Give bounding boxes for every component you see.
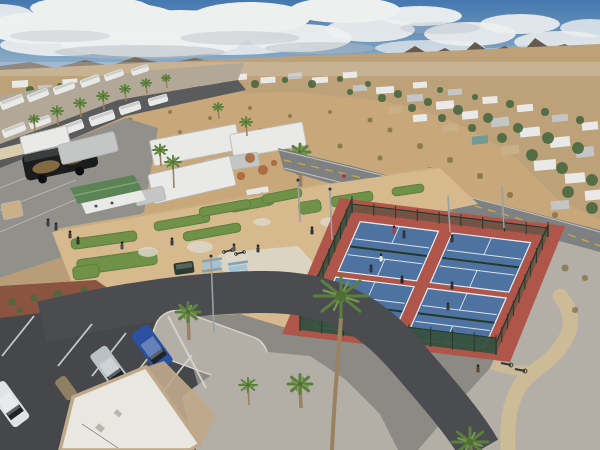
- parked-rv: [147, 93, 168, 106]
- putting-green: [348, 207, 377, 219]
- palm-trunk: [341, 296, 342, 302]
- palm-frond: [185, 312, 188, 318]
- palm-frond: [146, 80, 150, 83]
- desert-shrub: [507, 192, 513, 198]
- palm-frond: [242, 122, 246, 125]
- person-body: [451, 237, 454, 243]
- desert-shrub: [417, 143, 423, 149]
- cloud: [440, 48, 560, 62]
- pavement-lines: [0, 164, 84, 232]
- minigolf-ground: [52, 168, 478, 332]
- pickleball-court: [314, 277, 414, 336]
- palm-frond: [292, 381, 300, 384]
- parked-rv: [103, 68, 124, 81]
- highway: [278, 148, 600, 264]
- parked-rv: [130, 64, 149, 76]
- cloud: [480, 14, 560, 34]
- palm-frond: [218, 107, 221, 108]
- rv-roof: [1, 94, 22, 104]
- palm-frond: [300, 152, 306, 154]
- cloud: [30, 0, 150, 20]
- putting-green: [72, 264, 100, 280]
- kitchen-line: [440, 266, 514, 275]
- town-ground: [0, 44, 600, 220]
- cloud: [60, 31, 240, 57]
- roadside-marker: [342, 174, 346, 178]
- town-tree: [586, 202, 598, 214]
- palm-frond: [470, 432, 483, 442]
- person-head: [380, 253, 383, 256]
- palm-trunk: [248, 385, 249, 405]
- cloud: [160, 37, 300, 55]
- rv-roof: [58, 119, 83, 130]
- palm-frond: [242, 383, 248, 385]
- foreground-palms: [176, 302, 488, 450]
- palm-frond: [214, 107, 218, 110]
- palm-frond: [103, 93, 107, 96]
- kitchen-line: [348, 255, 422, 264]
- palm-frond: [188, 305, 196, 312]
- cloud: [325, 18, 415, 42]
- palm-crown: [145, 82, 148, 85]
- stall-line: [92, 333, 126, 376]
- cream-trailer: [0, 143, 27, 161]
- roof-vent: [114, 409, 123, 417]
- car-windshield: [149, 348, 167, 365]
- court-net: [442, 258, 518, 267]
- mobile-home: [57, 131, 118, 164]
- coach-swirl: [31, 158, 61, 176]
- coach-body: [21, 140, 99, 181]
- rv-roof: [90, 110, 113, 120]
- town-homes: [12, 71, 600, 210]
- rv-roof: [3, 122, 24, 132]
- palm-frond: [248, 380, 250, 385]
- parking-and-drive: [0, 280, 480, 450]
- rust-bush: [271, 160, 277, 166]
- palm-frond: [465, 442, 470, 450]
- parked-cars: [0, 323, 174, 428]
- gravel-shrub: [582, 275, 588, 281]
- parked-rv: [0, 93, 25, 110]
- gravel-median: [146, 304, 274, 391]
- person-head: [447, 302, 450, 305]
- pickleball-court: [406, 288, 506, 347]
- fence-windscreen: [300, 314, 496, 354]
- aerial-photo-rv-resort: [0, 0, 600, 450]
- tee-pad: [320, 217, 340, 227]
- desert-shrub: [378, 156, 383, 161]
- desert-shrub: [258, 128, 262, 132]
- town-home: [520, 126, 541, 137]
- bicycle-wheel: [231, 249, 234, 252]
- palm-frond: [218, 104, 219, 107]
- fence-windscreen: [352, 204, 548, 236]
- palm-frond: [80, 100, 82, 103]
- palm-trunk: [470, 442, 471, 450]
- landscape-shrub: [103, 289, 109, 295]
- town-home: [88, 83, 101, 90]
- rv-roof: [28, 88, 47, 97]
- palm-frond: [30, 119, 34, 122]
- palm-frond: [80, 103, 84, 106]
- street-palms: [29, 75, 170, 131]
- palm-frond: [458, 438, 470, 442]
- town-tree: [378, 94, 386, 102]
- town-home: [582, 121, 599, 130]
- town-tree: [408, 104, 416, 112]
- palm-frond: [457, 442, 470, 450]
- fence-rail: [352, 204, 548, 228]
- palm-crown: [159, 149, 162, 152]
- court-net: [418, 313, 494, 322]
- town-home: [413, 114, 428, 122]
- person-head: [69, 230, 72, 233]
- parked-rv: [52, 80, 75, 95]
- mobile-home: [20, 125, 71, 154]
- parked-rv: [88, 109, 116, 127]
- person-head: [55, 222, 58, 225]
- palm-frond: [300, 384, 308, 391]
- car-windshield: [107, 368, 125, 384]
- center-line: [470, 270, 477, 287]
- palm-frond: [160, 150, 165, 154]
- picnic-table-bench: [228, 260, 248, 265]
- person-head: [257, 244, 260, 247]
- concrete-patio: [220, 246, 316, 288]
- palm-frond: [53, 108, 57, 111]
- center-line: [460, 293, 467, 310]
- palm-frond: [55, 111, 57, 114]
- parked-rvs: [0, 64, 169, 139]
- palm-crown: [336, 291, 347, 302]
- palm-frond: [215, 106, 218, 107]
- palm-frond: [103, 96, 107, 99]
- town-tree: [57, 83, 63, 89]
- pickleball-players: [370, 225, 480, 372]
- desert-shrub: [288, 114, 292, 118]
- person-body: [393, 228, 396, 234]
- palm-frond: [53, 111, 57, 114]
- palm-crown: [217, 106, 220, 109]
- palm-trunk: [173, 162, 174, 188]
- golf-flag: [254, 195, 257, 198]
- person-head: [233, 243, 236, 246]
- rust-bush: [283, 149, 291, 157]
- palm-frond: [173, 158, 175, 162]
- rv-street-asphalt: [0, 80, 246, 170]
- palm-frond: [158, 150, 160, 154]
- cloud: [0, 4, 34, 28]
- palm-frond: [125, 86, 126, 89]
- cloud-shadow: [10, 30, 110, 42]
- coach-wheel: [74, 166, 85, 177]
- person-body: [77, 239, 80, 245]
- stall-line: [58, 324, 92, 366]
- palm-trunk: [218, 107, 219, 119]
- palm-frond: [341, 296, 359, 302]
- gravel-south: [182, 352, 398, 450]
- putting-green: [392, 184, 425, 196]
- palm-crown: [246, 383, 250, 387]
- palm-frond: [78, 103, 80, 106]
- palm-crown: [186, 310, 191, 315]
- palm-trunk: [103, 96, 104, 110]
- parked-rv: [26, 87, 49, 102]
- tee-pad: [187, 241, 213, 253]
- town-tree: [453, 105, 463, 115]
- palm-frond: [142, 80, 146, 83]
- person-head: [477, 364, 480, 367]
- town-home: [260, 76, 275, 83]
- town-home: [551, 200, 570, 210]
- cloud: [248, 24, 352, 52]
- palm-frond: [180, 305, 188, 312]
- mountain-range: [0, 38, 600, 90]
- person-head: [393, 225, 396, 228]
- tee-pads: [138, 217, 384, 264]
- picnic-table-bench: [202, 267, 222, 272]
- palm-frond: [341, 282, 348, 296]
- desert-shrub: [308, 156, 312, 160]
- pickleball-complex: [282, 196, 565, 373]
- town-home: [112, 76, 128, 83]
- landscape-shrub: [81, 287, 88, 294]
- golf-cart: [54, 374, 79, 401]
- town-home: [501, 145, 520, 156]
- palm-frond: [246, 122, 250, 125]
- parking-stall-lines: [2, 316, 192, 398]
- center-line: [353, 315, 360, 332]
- light-pole: [330, 190, 332, 240]
- picnic-table-top: [203, 261, 222, 268]
- person-head: [171, 237, 174, 240]
- desert-shrub: [198, 148, 202, 152]
- pavement: [0, 118, 158, 278]
- town-home: [233, 73, 247, 80]
- desert-shrub: [248, 106, 252, 110]
- palm-trunk: [146, 83, 147, 94]
- putting-greens: [71, 184, 425, 280]
- palm-frond: [57, 108, 59, 111]
- center-line: [484, 238, 491, 255]
- cloud-shadow: [400, 22, 480, 34]
- cloud-shadow: [180, 31, 300, 45]
- palm-frond: [188, 306, 191, 312]
- people: [47, 218, 314, 252]
- palm-frond: [167, 157, 173, 162]
- palm-crown: [79, 102, 82, 105]
- desert-shrub: [168, 110, 172, 114]
- palm-crown: [245, 121, 248, 124]
- town-home: [202, 78, 218, 85]
- palm-frond: [30, 116, 34, 119]
- desert-shrub: [218, 138, 222, 142]
- parked-rv: [1, 121, 27, 138]
- palm-frond: [322, 281, 341, 296]
- desert-shrub: [208, 116, 212, 120]
- putting-green: [378, 222, 410, 239]
- town-tree: [468, 124, 476, 132]
- golf-canopy: [246, 186, 270, 202]
- person-head: [370, 264, 373, 267]
- desert-shrubs: [58, 106, 558, 218]
- town-tree: [572, 142, 584, 154]
- palm-frond: [168, 160, 173, 162]
- mobile-home: [148, 156, 237, 204]
- palm-frond: [334, 296, 341, 310]
- bicycle: [224, 250, 232, 252]
- palm-trunk: [34, 119, 35, 131]
- town-home: [38, 85, 52, 92]
- cloud: [0, 34, 120, 56]
- person-body: [403, 233, 406, 239]
- fence-windscreen: [496, 225, 548, 354]
- center-line: [445, 326, 452, 343]
- cloud: [378, 6, 462, 26]
- rv-roof: [149, 94, 167, 101]
- internal-road: [42, 292, 480, 450]
- palm-trunk: [160, 150, 161, 166]
- bicycle: [501, 363, 511, 365]
- palm-frond: [297, 384, 300, 390]
- court-surface-red: [282, 198, 565, 362]
- palm-frond: [146, 83, 149, 84]
- wall-west: [58, 230, 80, 302]
- cloud: [190, 2, 310, 34]
- rv-roof: [81, 75, 99, 83]
- town-tree: [424, 98, 432, 106]
- kitchen-line: [323, 310, 397, 319]
- palm-frond: [155, 149, 160, 150]
- palm-frond: [457, 432, 470, 442]
- fence-rail: [300, 199, 352, 317]
- tee-pad: [217, 252, 247, 264]
- palm-crown: [165, 77, 168, 80]
- motorcoach-pavement: [0, 118, 158, 304]
- desert-shrub: [138, 138, 142, 142]
- palm-frond: [76, 102, 80, 103]
- center-line: [284, 160, 600, 246]
- golf-cart-body: [173, 261, 194, 276]
- landscape-shrubs: [9, 287, 134, 314]
- gravel-shrub: [517, 285, 523, 291]
- edge-line-far: [279, 150, 600, 232]
- town-tree: [506, 100, 514, 108]
- mobile-home: [204, 152, 260, 174]
- town-tree: [26, 86, 34, 94]
- town-home: [552, 114, 569, 122]
- picnic-tables: [202, 257, 248, 275]
- car-windshield: [6, 404, 24, 420]
- home-boxes: [1, 122, 307, 220]
- landscape-shrub: [17, 307, 23, 313]
- desert-shrub: [338, 144, 343, 149]
- house-window: [110, 201, 113, 204]
- palm-trunk: [300, 152, 301, 198]
- palm-crown: [171, 160, 174, 163]
- picnic-table-bench: [228, 270, 248, 275]
- palm-frond: [300, 384, 308, 387]
- coach-roof: [23, 141, 93, 162]
- rv-roof: [132, 65, 148, 72]
- person-body: [311, 229, 314, 235]
- town-home: [472, 135, 489, 144]
- palm-frond: [470, 442, 483, 450]
- palm-crown: [466, 438, 473, 445]
- desert-shrub: [477, 173, 483, 179]
- sky-gradient: [0, 0, 600, 92]
- palm-frond: [121, 89, 125, 92]
- parked-rv: [28, 114, 51, 129]
- town-tree: [308, 80, 316, 88]
- palm-frond: [146, 80, 147, 83]
- palm-frond: [146, 83, 150, 86]
- palm-trunk: [300, 384, 301, 408]
- desert-shrub: [98, 132, 102, 136]
- palm-frond: [173, 157, 179, 162]
- haze-band: [0, 74, 600, 84]
- person-body: [257, 247, 260, 253]
- town-home: [388, 106, 401, 114]
- rust-bush: [237, 172, 245, 180]
- town-tree: [136, 93, 144, 101]
- tall-palm-tree: [314, 274, 368, 450]
- palm-crown: [102, 95, 105, 98]
- palm-frond: [142, 83, 146, 86]
- town-tree: [337, 76, 343, 82]
- town-tree: [84, 86, 92, 94]
- car-roof: [140, 336, 163, 360]
- stall-line: [2, 316, 34, 356]
- putting-green: [71, 230, 138, 249]
- mobile-home: [149, 124, 240, 166]
- person-head: [311, 226, 314, 229]
- town-tree: [526, 149, 538, 161]
- person-head: [451, 234, 454, 237]
- putting-green: [183, 223, 242, 242]
- palm-frond: [125, 89, 129, 92]
- person-head: [47, 218, 50, 221]
- gravel-shrubs: [517, 257, 588, 313]
- coach-swirl: [61, 152, 85, 166]
- person-head: [77, 236, 80, 239]
- palm-frond: [99, 96, 103, 99]
- palm-frond: [300, 147, 303, 152]
- rust-bushes: [237, 149, 303, 180]
- putting-green: [230, 195, 275, 212]
- median-curb: [168, 316, 206, 388]
- person-body: [370, 267, 373, 273]
- palm-frond: [322, 296, 341, 311]
- court-fence-far: [352, 201, 548, 355]
- house-walls: [76, 180, 146, 214]
- kitchen-line: [447, 250, 521, 259]
- far-ridge: [0, 52, 600, 80]
- town-tree: [513, 123, 523, 133]
- palm-trunk: [125, 89, 126, 101]
- palm-frond: [246, 122, 250, 123]
- fence-rail: [300, 314, 496, 338]
- town-tree: [541, 108, 549, 116]
- highway-asphalt: [278, 148, 600, 264]
- rv-street-area: [0, 63, 246, 170]
- bicycle: [515, 369, 525, 371]
- edge-line-near: [284, 168, 600, 260]
- cloud: [514, 31, 600, 53]
- town-tree: [576, 116, 584, 124]
- cloud: [560, 19, 600, 37]
